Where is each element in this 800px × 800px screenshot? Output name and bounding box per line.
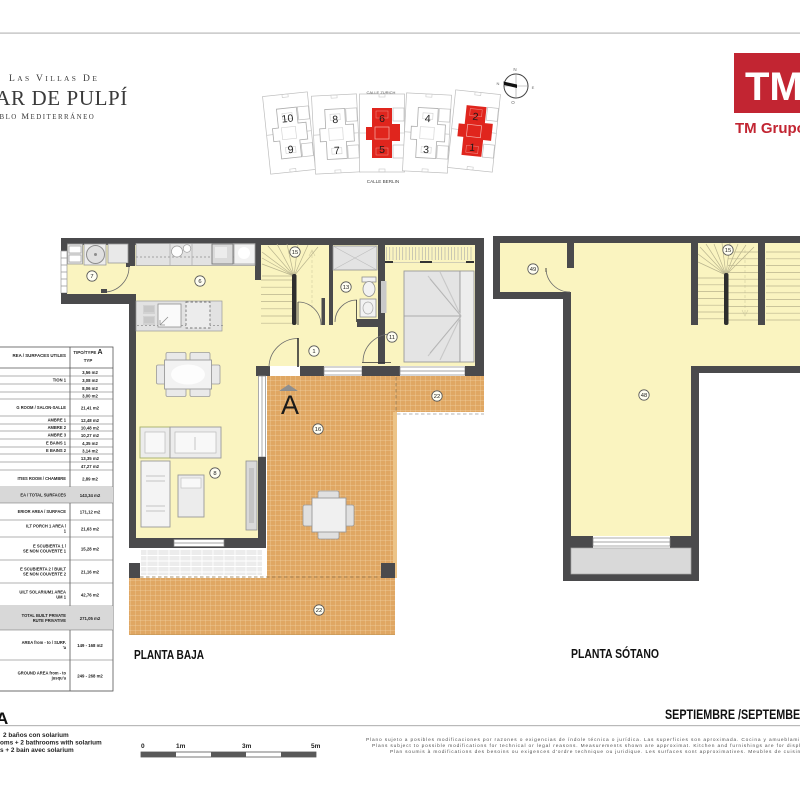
svg-text:49: 49 xyxy=(530,267,536,273)
svg-text:TM Grupo: TM Grupo xyxy=(735,120,800,137)
svg-text:TM: TM xyxy=(745,65,800,109)
svg-text:10: 10 xyxy=(281,112,294,125)
svg-text:LAS VILLAS DE: LAS VILLAS DE xyxy=(9,74,99,84)
svg-text:6: 6 xyxy=(198,279,201,285)
svg-text:jusqu’a: jusqu’a xyxy=(51,676,67,681)
svg-text:CALLE BERLIN: CALLE BERLIN xyxy=(367,179,399,184)
svg-text:UM 1: UM 1 xyxy=(56,595,67,600)
svg-text:SE NON COUVERTE 1: SE NON COUVERTE 1 xyxy=(23,549,67,554)
svg-text:E BAINS 2: E BAINS 2 xyxy=(46,448,67,453)
svg-text:oms + 2 bathrooms with solariu: oms + 2 bathrooms with solarium xyxy=(0,740,102,747)
svg-text:21,41 m2: 21,41 m2 xyxy=(81,405,100,410)
svg-text:0: 0 xyxy=(141,743,145,750)
svg-text:N: N xyxy=(497,81,500,86)
svg-text:8: 8 xyxy=(332,114,339,126)
svg-text:SEPTIEMBRE /SEPTEMBER: SEPTIEMBRE /SEPTEMBER xyxy=(665,706,800,722)
svg-text:13,35 m2: 13,35 m2 xyxy=(81,456,100,461)
svg-text:N: N xyxy=(513,67,516,72)
svg-text:TYP: TYP xyxy=(84,358,93,363)
svg-text:3: 3 xyxy=(423,144,430,156)
svg-text:10,48 m2: 10,48 m2 xyxy=(81,425,100,430)
svg-text:Plano sujeto a posibles modifi: Plano sujeto a posibles modificaciones p… xyxy=(366,737,800,743)
svg-text:3,00 m2: 3,00 m2 xyxy=(82,393,98,398)
svg-text:A: A xyxy=(281,390,299,420)
svg-text:MAR DE PULPÍ: MAR DE PULPÍ xyxy=(0,86,128,110)
svg-text:42,76 m2: 42,76 m2 xyxy=(81,592,100,597)
svg-text:ILT PORCH 1 AREA /: ILT PORCH 1 AREA / xyxy=(26,524,67,529)
svg-text:6: 6 xyxy=(379,113,385,125)
svg-text:3,56 m2: 3,56 m2 xyxy=(82,370,98,375)
svg-text:1m: 1m xyxy=(176,743,186,750)
svg-text:TIPO/TYPE A: TIPO/TYPE A xyxy=(73,349,102,356)
svg-text:8,06 m2: 8,06 m2 xyxy=(82,386,98,391)
svg-text:PLANTA BAJA: PLANTA BAJA xyxy=(134,648,204,662)
svg-text:s + 2 bain avec solarium: s + 2 bain avec solarium xyxy=(0,747,74,754)
svg-text:SE NON COUVERTE 2: SE NON COUVERTE 2 xyxy=(23,572,67,577)
svg-text:4: 4 xyxy=(425,113,432,125)
svg-text:5: 5 xyxy=(379,144,385,156)
svg-text:Plan soumis à modifications de: Plan soumis à modifications des besoins … xyxy=(390,749,800,755)
svg-text:271,05 m2: 271,05 m2 xyxy=(80,616,101,621)
svg-text:2,89 m2: 2,89 m2 xyxy=(82,476,98,481)
svg-text:7: 7 xyxy=(334,145,341,157)
svg-text:149 - 168 m2: 149 - 168 m2 xyxy=(77,643,103,648)
svg-text:RUTE PRIVATIVE: RUTE PRIVATIVE xyxy=(33,618,67,623)
svg-text:CALLE ZURICH: CALLE ZURICH xyxy=(367,90,396,95)
svg-text:REA / SURFACES UTILES: REA / SURFACES UTILES xyxy=(12,353,66,358)
svg-text:3m: 3m xyxy=(242,743,252,750)
svg-text:15,28 m2: 15,28 m2 xyxy=(81,546,100,551)
svg-text:47,27 m2: 47,27 m2 xyxy=(81,464,100,469)
svg-text:E BAINS 1: E BAINS 1 xyxy=(46,441,67,446)
svg-text:1: 1 xyxy=(312,349,315,355)
svg-text:PLANTA SÓTANO: PLANTA SÓTANO xyxy=(571,646,659,661)
svg-text:11: 11 xyxy=(389,335,395,341)
svg-text:TION 1: TION 1 xyxy=(53,378,67,383)
svg-text:21,16 m2: 21,16 m2 xyxy=(81,569,100,574)
svg-text:48: 48 xyxy=(641,393,647,399)
svg-text:ITIES ROOM / CHAMBRE: ITIES ROOM / CHAMBRE xyxy=(18,476,67,481)
svg-text:143,34 m2: 143,34 m2 xyxy=(80,493,101,498)
svg-text:ERIOR AREA / SURFACE: ERIOR AREA / SURFACE xyxy=(18,509,67,514)
svg-text:171,12 m2: 171,12 m2 xyxy=(80,509,101,514)
svg-text:4,35 m2: 4,35 m2 xyxy=(82,441,98,446)
svg-text:Plans subject to possible modi: Plans subject to possible modifications … xyxy=(372,743,800,749)
svg-text:5m: 5m xyxy=(311,743,321,750)
svg-text:21,63 m2: 21,63 m2 xyxy=(81,526,100,531)
svg-text:PUEBLO MEDITERRÁNEO: PUEBLO MEDITERRÁNEO xyxy=(0,111,95,121)
svg-text:15: 15 xyxy=(725,248,731,254)
svg-text:AMBRE 2: AMBRE 2 xyxy=(48,425,67,430)
svg-text:15: 15 xyxy=(292,250,298,256)
svg-text:AMBRE 1: AMBRE 1 xyxy=(48,418,67,423)
svg-text:7: 7 xyxy=(90,274,93,280)
svg-text:10,27 m2: 10,27 m2 xyxy=(81,433,100,438)
svg-text:3,14 m2: 3,14 m2 xyxy=(82,448,98,453)
svg-text:2 baños con solarium: 2 baños con solarium xyxy=(3,732,69,739)
svg-text:EA / TOTAL SURFACES: EA / TOTAL SURFACES xyxy=(20,493,66,498)
svg-text:22: 22 xyxy=(434,394,440,400)
svg-text:G ROOM / SALON-SALLE: G ROOM / SALON-SALLE xyxy=(16,405,66,410)
svg-text:22: 22 xyxy=(316,608,322,614)
svg-text:AREA from - to / SURF.: AREA from - to / SURF. xyxy=(22,640,66,645)
svg-text:AMBRE 3: AMBRE 3 xyxy=(48,433,67,438)
svg-text:A: A xyxy=(0,709,8,728)
svg-text:8: 8 xyxy=(213,471,216,477)
svg-text:249 - 268 m2: 249 - 268 m2 xyxy=(77,673,103,678)
svg-text:3,08 m2: 3,08 m2 xyxy=(82,378,98,383)
svg-text:E: E xyxy=(532,85,535,90)
svg-text:12,48 m2: 12,48 m2 xyxy=(81,418,100,423)
svg-text:16: 16 xyxy=(315,427,321,433)
svg-text:13: 13 xyxy=(343,285,349,291)
svg-text:O: O xyxy=(511,100,515,105)
